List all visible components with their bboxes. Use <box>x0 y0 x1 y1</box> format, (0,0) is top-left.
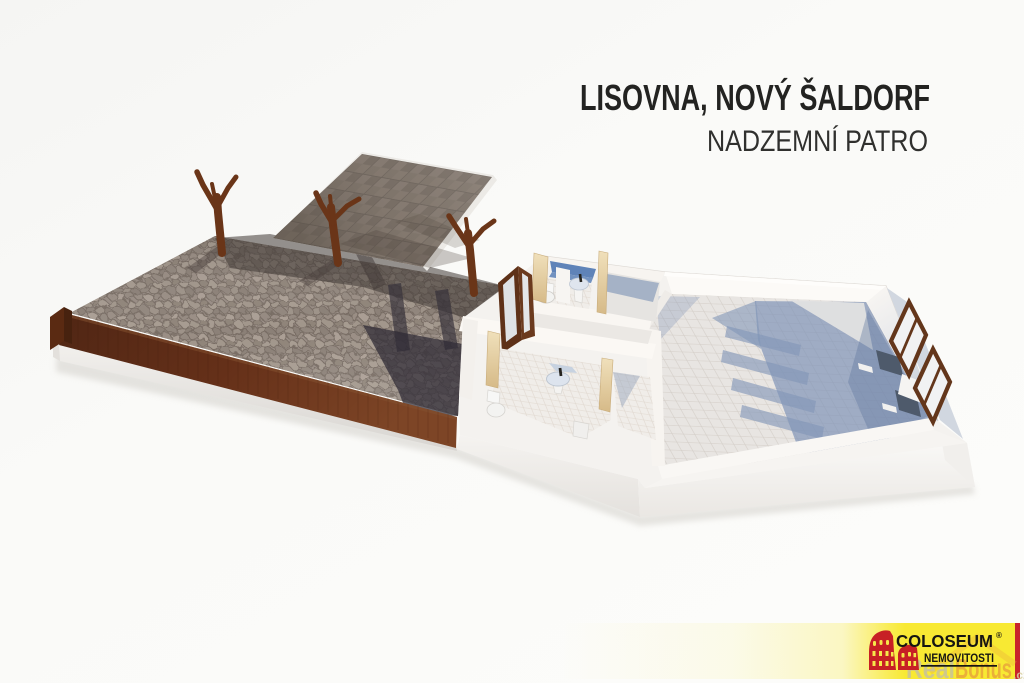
svg-text:LISOVNA, NOVÝ ŠALDORF: LISOVNA, NOVÝ ŠALDORF <box>580 76 930 118</box>
svg-text:NADZEMNÍ PATRO: NADZEMNÍ PATRO <box>707 125 928 158</box>
svg-text:.cz: .cz <box>1013 668 1024 682</box>
svg-text:COLOSEUM: COLOSEUM <box>896 631 993 651</box>
svg-text:NEMOVITOSTI: NEMOVITOSTI <box>924 651 994 665</box>
svg-text:®: ® <box>996 631 1002 640</box>
